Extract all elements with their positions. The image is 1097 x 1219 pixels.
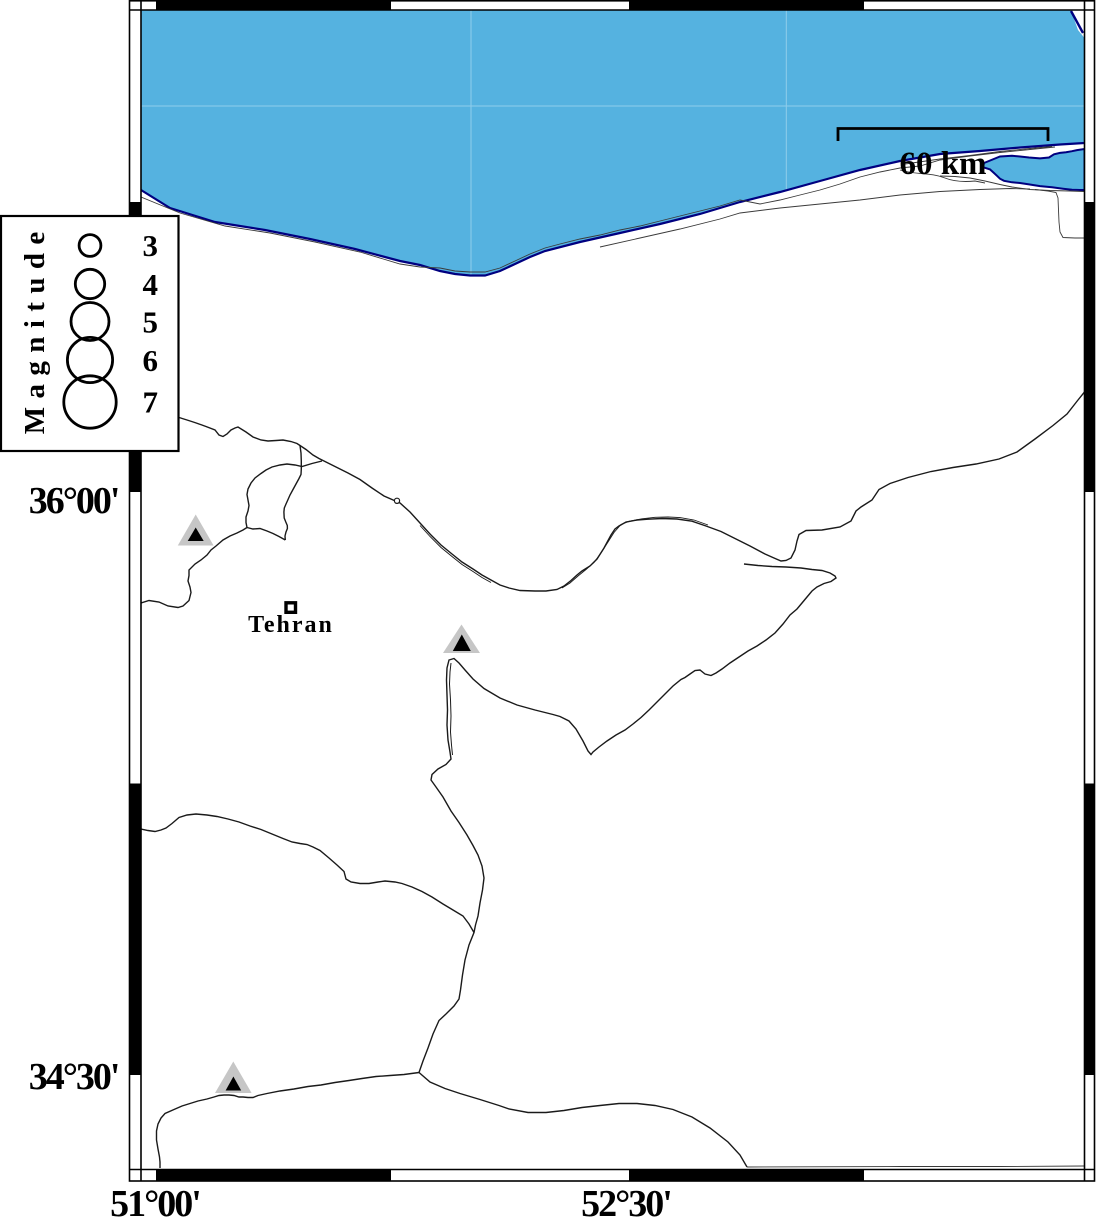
svg-text:Magnitude: Magnitude	[19, 223, 51, 434]
svg-text:60 km: 60 km	[899, 146, 986, 182]
svg-text:Tehran: Tehran	[248, 612, 334, 638]
svg-text:4: 4	[143, 267, 159, 302]
svg-text:51°00': 51°00'	[110, 1183, 200, 1219]
svg-text:7: 7	[143, 385, 159, 420]
svg-text:5: 5	[143, 305, 159, 340]
svg-text:3: 3	[143, 228, 159, 263]
svg-text:34°30': 34°30'	[29, 1056, 119, 1098]
svg-text:36°00': 36°00'	[29, 480, 119, 522]
svg-text:6: 6	[143, 343, 159, 378]
svg-text:52°30': 52°30'	[581, 1183, 671, 1219]
